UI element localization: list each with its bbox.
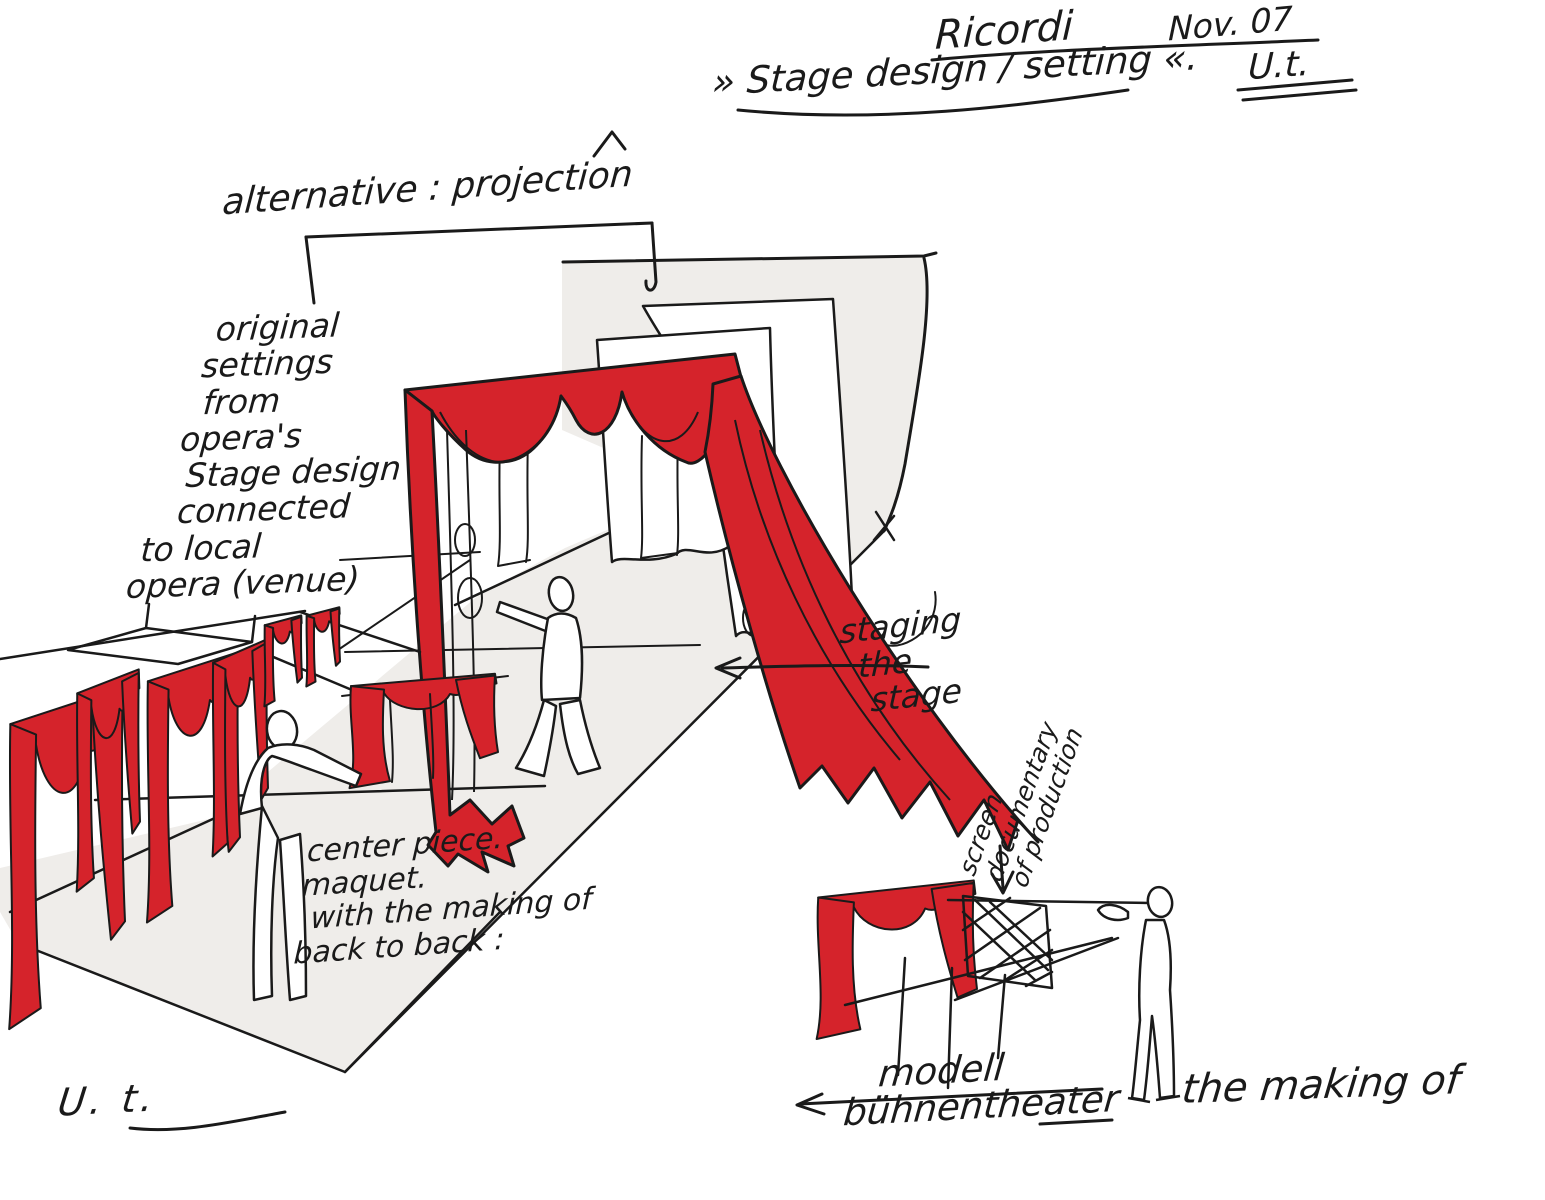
header-signature: U.t. xyxy=(1247,44,1310,88)
annotation-staging-the-stage: staging the stage xyxy=(836,601,965,722)
model-stage-curtain xyxy=(817,880,977,1039)
label-modell: modell bühnentheater xyxy=(842,1043,1124,1132)
curtain-valance xyxy=(405,354,741,463)
projection-screen-hatched xyxy=(963,896,1052,988)
annotation-original-settings: original settings from opera's Stage des… xyxy=(125,305,413,606)
projection-caret xyxy=(594,132,625,156)
annotation-center-piece: center piece. maquet. with the making of… xyxy=(293,815,595,971)
curtain-ring xyxy=(455,524,475,556)
maker-head xyxy=(1145,885,1175,919)
mini-curtain-6 xyxy=(306,607,340,686)
sketch-page: Ricordi Nov. 07 » Stage design / setting… xyxy=(0,0,1545,1200)
artist-signature: U. t. xyxy=(55,1075,159,1125)
